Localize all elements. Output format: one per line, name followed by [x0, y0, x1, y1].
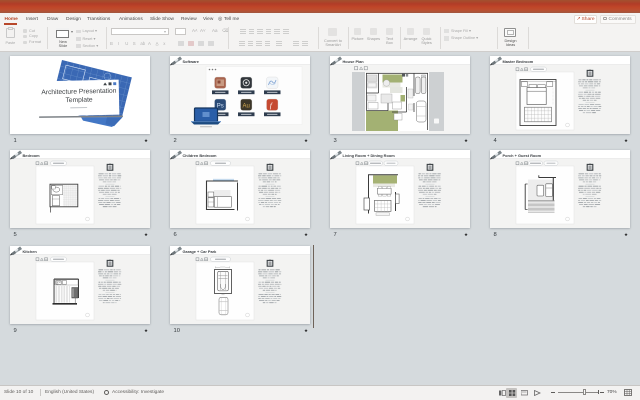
svg-text:Template: Template	[65, 97, 93, 105]
svg-text:Porch + Guest Room: Porch + Guest Room	[503, 153, 542, 158]
svg-text:Garage + Car Park: Garage + Car Park	[183, 249, 218, 254]
svg-text:Au: Au	[243, 103, 250, 109]
svg-text:Master Bedroom: Master Bedroom	[503, 59, 534, 64]
svg-text:House Plan: House Plan	[343, 59, 365, 64]
svg-text:Living Room + Dining Room: Living Room + Dining Room	[343, 153, 396, 158]
svg-text:Kitchen: Kitchen	[23, 249, 38, 254]
svg-text:Bedroom: Bedroom	[23, 153, 41, 158]
svg-text:Children Bedroom: Children Bedroom	[183, 153, 217, 158]
svg-text:Software: Software	[183, 59, 200, 64]
